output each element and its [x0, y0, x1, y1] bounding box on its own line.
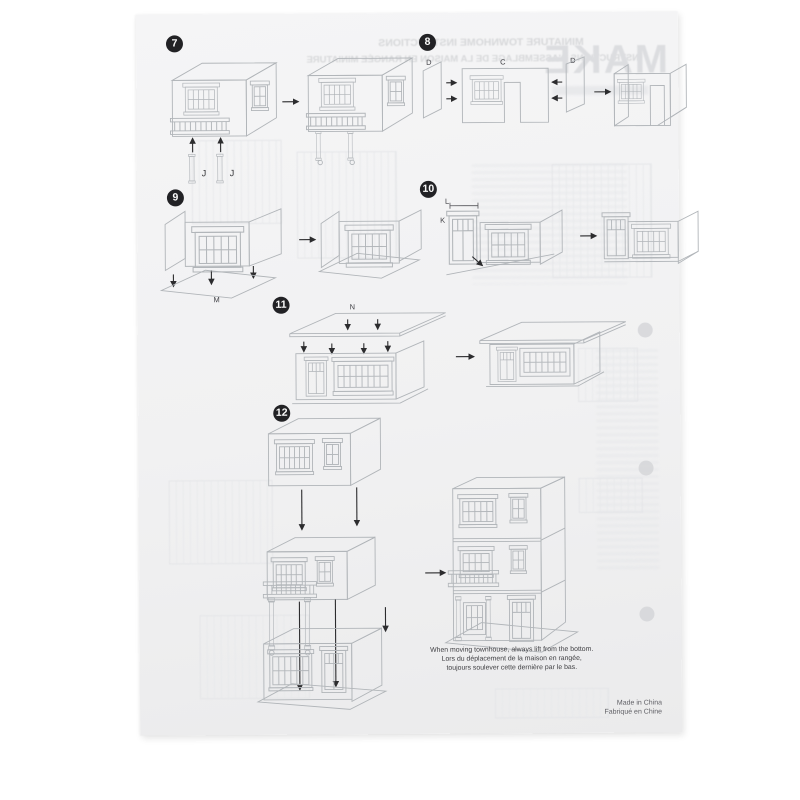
warning-line-fr-2: toujours soulever cette dernière par le …: [428, 663, 596, 673]
side-panel: [423, 62, 441, 118]
part-label-M: M: [214, 295, 220, 304]
front-wall: [462, 68, 548, 123]
step-12-stack-diagram: [260, 411, 414, 712]
measure-bracket: [450, 203, 478, 209]
step-11-diagram: N: [284, 300, 569, 408]
origin-note: Made in China Fabriqué en Chine: [558, 698, 662, 717]
assembly-on-base: [319, 210, 421, 279]
step-7-badge: 7: [166, 35, 183, 52]
assembly-with-door: [602, 211, 698, 264]
step-8-diagram: D C D: [420, 51, 673, 143]
step-9-diagram: M: [159, 201, 422, 305]
step-7-diagram: J J: [168, 51, 404, 186]
step-10-diagram: L K: [434, 193, 673, 284]
part-label-J: J: [230, 168, 235, 178]
assembled-walls: [614, 64, 686, 125]
completed-townhouse: [445, 477, 578, 653]
ghost-step-circle: [639, 607, 654, 622]
ghost-diagram: [578, 348, 638, 402]
roof-panel: [290, 313, 446, 337]
door-unit: [447, 211, 480, 264]
part-label-K: K: [440, 216, 445, 225]
part-label-C: C: [500, 57, 506, 66]
part-label-N: N: [350, 302, 355, 311]
side-panel: [566, 57, 584, 112]
first-floor-module: [292, 341, 428, 404]
part-label-D: D: [426, 58, 432, 67]
ghost-step-circle: [639, 461, 654, 476]
part-label-L: L: [445, 197, 449, 206]
instruction-sheet: MINIATURE TOWNHOME INSTRUCTIONS INSTRUCT…: [136, 11, 682, 735]
top-floor-module: [268, 418, 380, 486]
ghost-step-circle: [638, 323, 653, 338]
ground-floor-module: [258, 628, 386, 710]
ghost-diagram: [169, 480, 274, 565]
house-with-columns-attached: [306, 58, 413, 165]
moving-warning: When moving townhouse, always lift from …: [428, 645, 596, 673]
house-with-balcony: J J: [170, 63, 277, 183]
middle-floor-module: [263, 537, 376, 655]
step-8-badge: 8: [419, 34, 436, 51]
part-label-J: J: [202, 168, 207, 178]
wall-assembly: [165, 209, 281, 272]
made-in-fr: Fabriqué en Chine: [558, 708, 662, 718]
